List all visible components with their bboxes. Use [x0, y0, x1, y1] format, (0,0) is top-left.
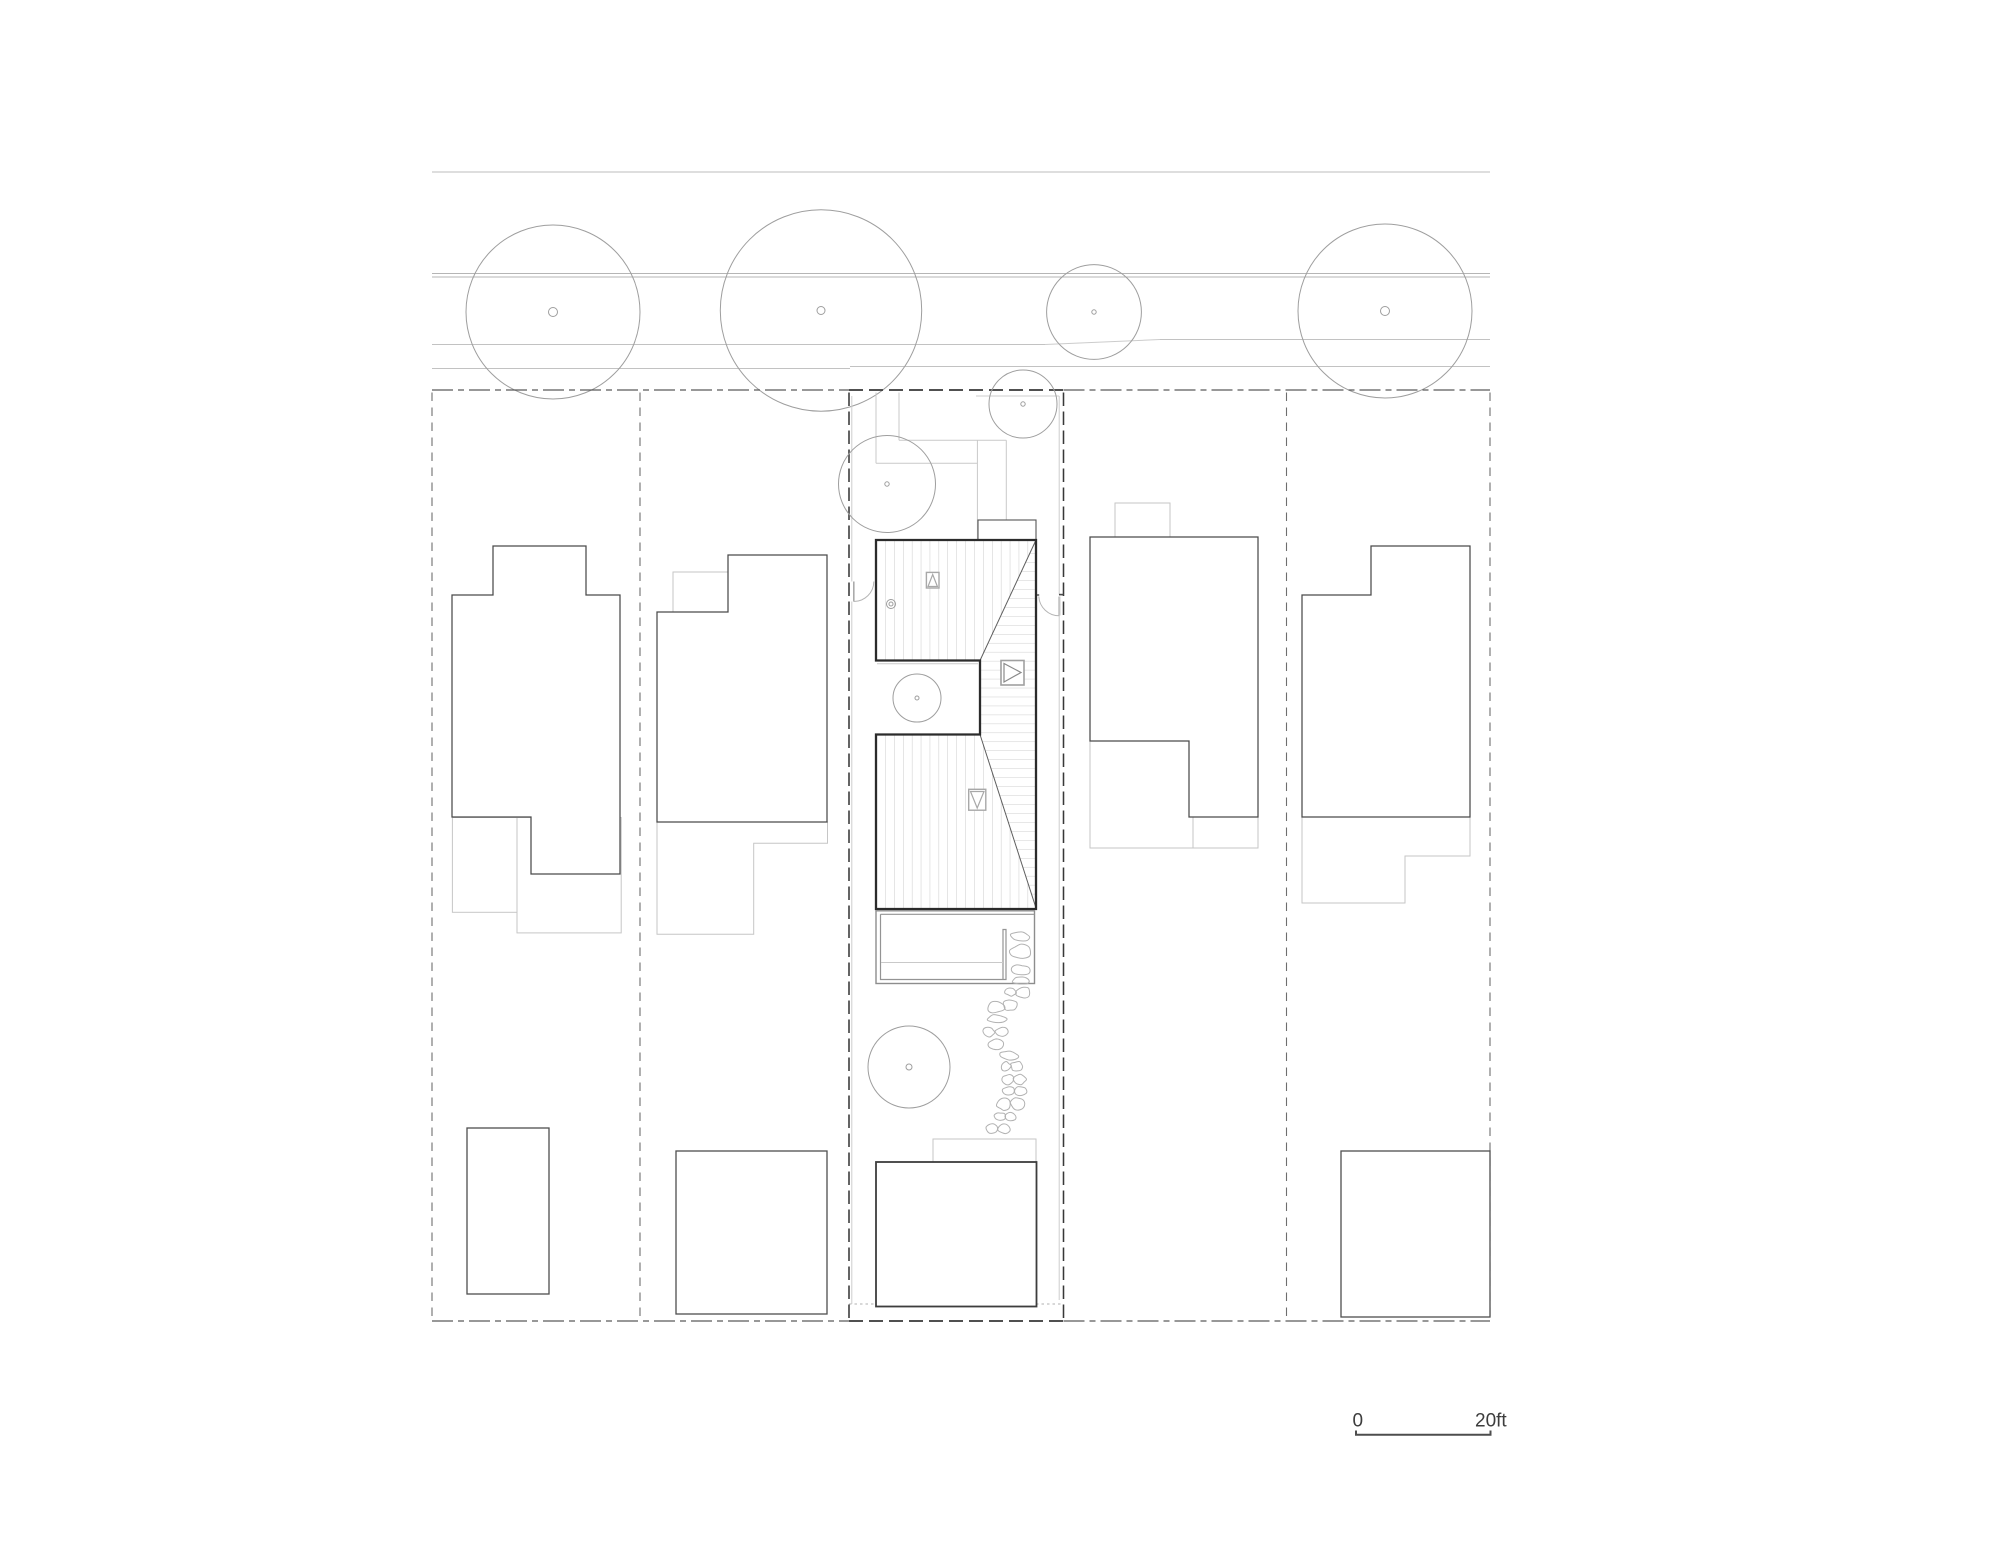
svg-text:0: 0	[1353, 1411, 1364, 1432]
svg-text:20ft: 20ft	[1475, 1411, 1507, 1432]
